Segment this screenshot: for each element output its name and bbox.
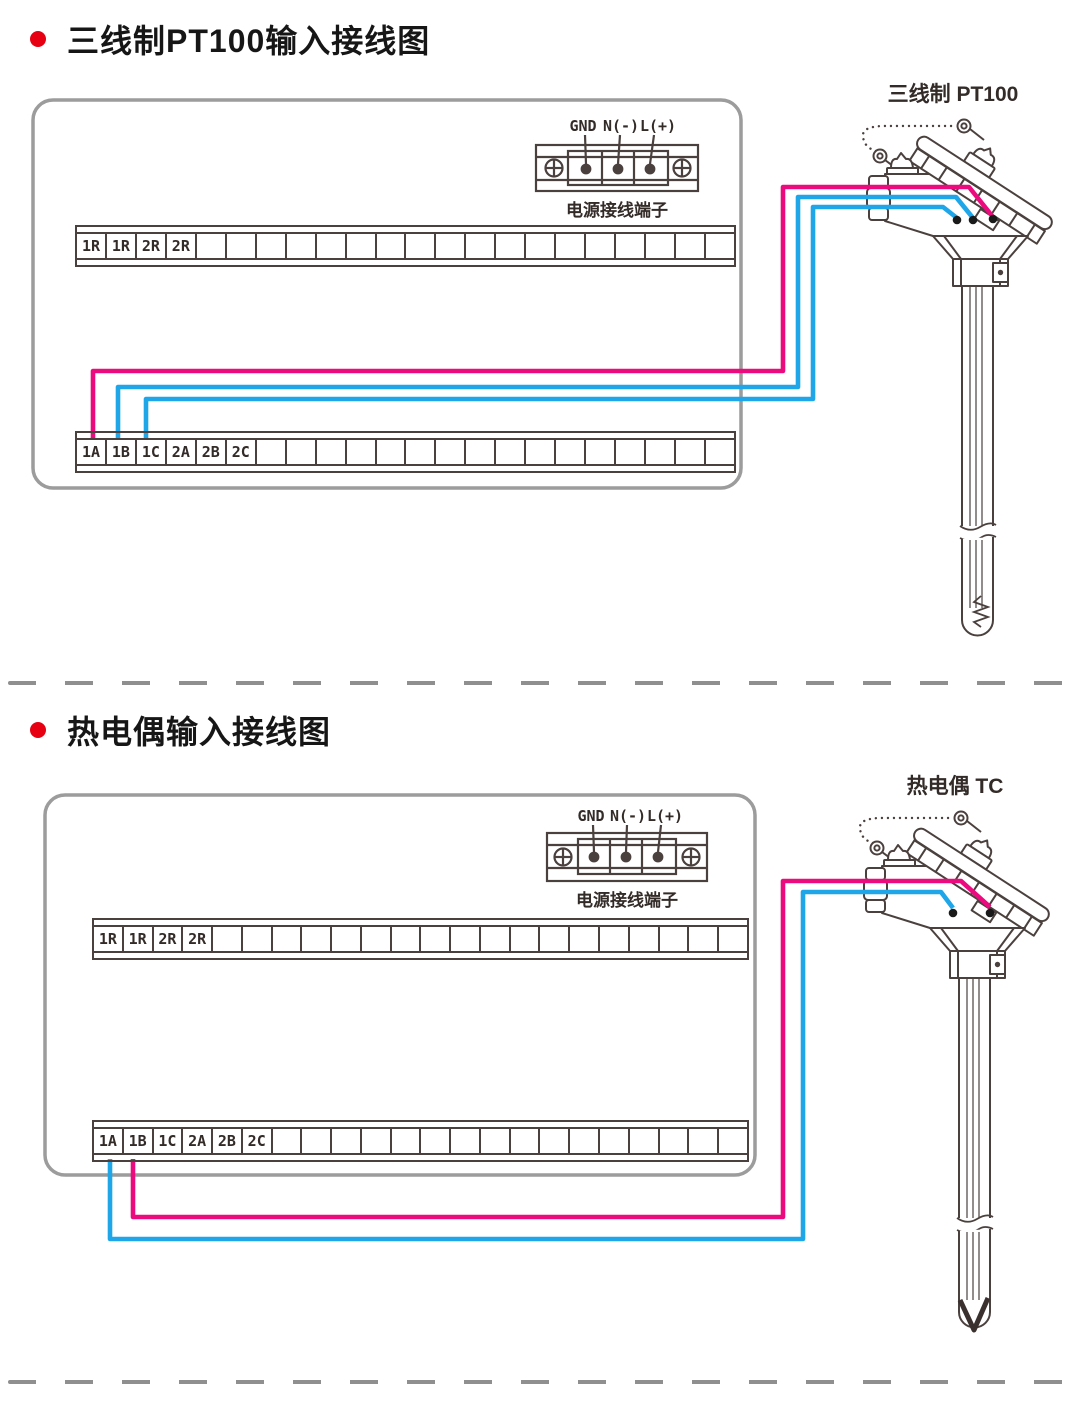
terminal-cell [213, 927, 243, 951]
terminal-cell [630, 1129, 660, 1153]
terminal-cell [451, 927, 481, 951]
head-terminal-dot [969, 216, 978, 225]
power-label-n: N(-) [610, 807, 646, 825]
terminal-cell [287, 234, 317, 258]
terminal-cell [406, 440, 436, 464]
terminal-cell: 1A [77, 440, 107, 464]
terminal-cell [347, 440, 377, 464]
terminal-cell [511, 1129, 541, 1153]
terminal-cell [586, 234, 616, 258]
pt100-section: GND N(-) L(+) 电源接线端子 三线制 PT100 三线制PT100输… [0, 0, 1080, 677]
terminal-cell [570, 927, 600, 951]
terminal-cell [421, 1129, 451, 1153]
terminal-cell [706, 440, 734, 464]
terminal-cell [466, 234, 496, 258]
power-label-l: L(+) [640, 117, 676, 135]
terminal-cell [630, 927, 660, 951]
terminal-cell [481, 1129, 511, 1153]
terminal-cell [273, 927, 303, 951]
terminal-cell [317, 234, 347, 258]
terminal-cell [600, 1129, 630, 1153]
terminal-cell [646, 234, 676, 258]
terminal-cell: 1C [154, 1129, 184, 1153]
terminal-cell [421, 927, 451, 951]
terminal-cell [660, 1129, 690, 1153]
power-terminal-dot-n [622, 853, 631, 862]
red-bullet-icon [30, 722, 46, 738]
terminal-cell [540, 927, 570, 951]
terminal-cell [646, 440, 676, 464]
power-terminal-dot-gnd [582, 165, 591, 174]
terminal-cell: 1A [94, 1129, 124, 1153]
terminal-cell: 2C [243, 1129, 273, 1153]
terminal-cell: 1C [137, 440, 167, 464]
terminal-cell [719, 1129, 747, 1153]
terminal-cell [496, 234, 526, 258]
pt100-sensor-head [863, 113, 1068, 635]
terminal-cell [526, 440, 556, 464]
power-label-n: N(-) [603, 117, 639, 135]
terminal-cell [689, 927, 719, 951]
terminal-cell [273, 1129, 303, 1153]
terminal-cell [556, 440, 586, 464]
head-terminal-dot [949, 909, 958, 918]
pt100-diagram-canvas: GND N(-) L(+) 电源接线端子 三线制 PT100 [0, 0, 1080, 677]
terminal-cell [332, 927, 362, 951]
pt100-title: 三线制PT100输入接线图 [67, 16, 430, 62]
terminal-cell: 2C [227, 440, 257, 464]
terminal-cell: 1B [124, 1129, 154, 1153]
terminal-cell [466, 440, 496, 464]
terminal-cell: 2B [197, 440, 227, 464]
terminal-cell: 1R [94, 927, 124, 951]
input-terminal-strip: 1A1B1C2A2B2C [75, 431, 736, 473]
power-terminal-dot-l [646, 165, 655, 174]
power-terminal-dot-n [614, 165, 623, 174]
power-label-gnd: GND [577, 807, 604, 825]
terminal-cell [317, 440, 347, 464]
thermocouple-section: GND N(-) L(+) 电源接线端子 热电偶 TC 热电偶输入接线图 1R1… [0, 677, 1080, 1403]
pt100-title-row: 三线制PT100输入接线图 [30, 16, 430, 62]
terminal-cell [676, 234, 706, 258]
terminal-cell [197, 234, 227, 258]
power-terminal-caption: 电源接线端子 [576, 890, 678, 910]
power-terminal-block [547, 825, 707, 881]
red-bullet-icon [30, 31, 46, 47]
terminal-cell [436, 440, 466, 464]
terminal-cell [392, 927, 422, 951]
terminal-cell [287, 440, 317, 464]
terminal-cell [332, 1129, 362, 1153]
power-terminal-block [536, 135, 698, 191]
power-terminal-dot-l [654, 853, 663, 862]
terminal-cell [616, 440, 646, 464]
tc-diagram-canvas: GND N(-) L(+) 电源接线端子 热电偶 TC [0, 677, 1080, 1403]
terminal-cell [586, 440, 616, 464]
terminal-cell [481, 927, 511, 951]
section-divider [8, 1380, 1072, 1384]
terminal-cell: 2B [213, 1129, 243, 1153]
terminal-cell [570, 1129, 600, 1153]
terminal-cell: 2R [154, 927, 184, 951]
terminal-cell [227, 234, 257, 258]
terminal-cell: 2R [137, 234, 167, 258]
terminal-cell [706, 234, 734, 258]
head-terminal-dot [989, 215, 998, 224]
power-label-l: L(+) [647, 807, 683, 825]
terminal-cell [660, 927, 690, 951]
terminal-cell [392, 1129, 422, 1153]
terminal-cell [436, 234, 466, 258]
tc-sensor-label: 热电偶 TC [907, 774, 1004, 798]
terminal-cell [362, 1129, 392, 1153]
terminal-cell: 2R [167, 234, 197, 258]
terminal-cell [243, 927, 273, 951]
terminal-cell [540, 1129, 570, 1153]
terminal-cell [347, 234, 377, 258]
terminal-cell [257, 440, 287, 464]
section-divider [8, 681, 1072, 685]
terminal-cell [556, 234, 586, 258]
input-terminal-strip: 1A1B1C2A2B2C [92, 1120, 749, 1162]
terminal-cell [616, 234, 646, 258]
terminal-cell [377, 234, 407, 258]
terminal-cell: 1R [124, 927, 154, 951]
head-terminal-dot [986, 909, 995, 918]
tc-title-row: 热电偶输入接线图 [30, 707, 331, 753]
power-terminal-dot-gnd [590, 853, 599, 862]
terminal-cell [406, 234, 436, 258]
panel-box [45, 795, 755, 1175]
terminal-cell [257, 234, 287, 258]
tc-title: 热电偶输入接线图 [67, 707, 331, 753]
power-label-gnd: GND [569, 117, 596, 135]
terminal-cell: 1B [107, 440, 137, 464]
pt100-sensor-label: 三线制 PT100 [888, 82, 1019, 106]
terminal-cell: 1R [107, 234, 137, 258]
terminal-cell [496, 440, 526, 464]
head-terminal-dot [953, 216, 962, 225]
terminal-cell [302, 927, 332, 951]
terminal-cell [362, 927, 392, 951]
terminal-cell [719, 927, 747, 951]
terminal-cell: 1R [77, 234, 107, 258]
terminal-cell [451, 1129, 481, 1153]
terminal-cell [511, 927, 541, 951]
relay-terminal-strip: 1R1R2R2R [92, 918, 749, 960]
terminal-cell: 2R [183, 927, 213, 951]
wiring-diagram-page: GND N(-) L(+) 电源接线端子 三线制 PT100 三线制PT100输… [0, 0, 1080, 1403]
relay-terminal-strip: 1R1R2R2R [75, 225, 736, 267]
terminal-cell: 2A [183, 1129, 213, 1153]
terminal-cell: 2A [167, 440, 197, 464]
terminal-cell [676, 440, 706, 464]
terminal-cell [689, 1129, 719, 1153]
terminal-cell [302, 1129, 332, 1153]
terminal-cell [600, 927, 630, 951]
power-terminal-caption: 电源接线端子 [566, 200, 668, 220]
terminal-cell [526, 234, 556, 258]
terminal-cell [377, 440, 407, 464]
